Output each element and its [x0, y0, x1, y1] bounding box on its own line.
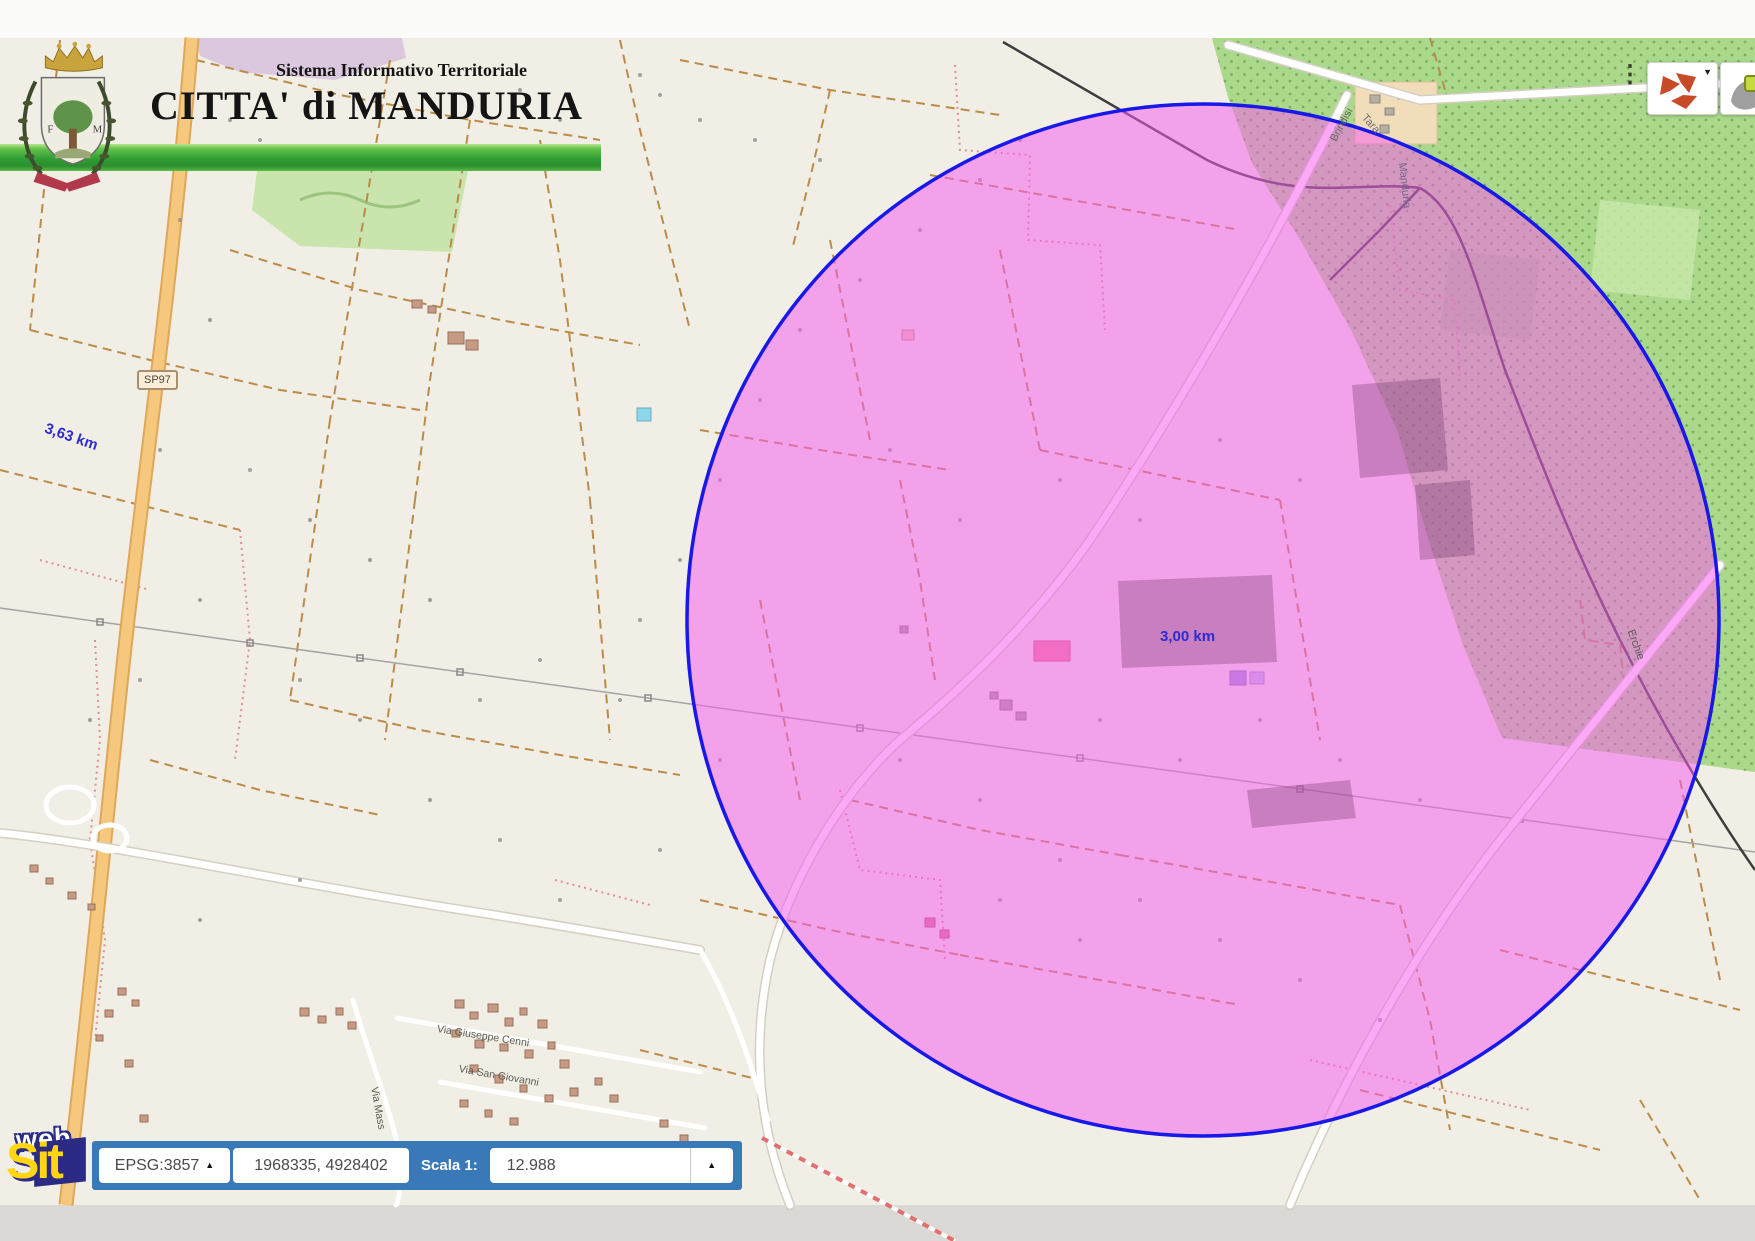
- websit-logo-sit: Sit: [6, 1132, 61, 1190]
- more-options-button[interactable]: ⋮: [1612, 56, 1638, 94]
- scale-input[interactable]: [505, 1156, 679, 1176]
- caret-up-icon: ▲: [205, 1161, 214, 1170]
- epsg-dropdown[interactable]: EPSG:3857 ▲: [99, 1148, 230, 1183]
- map-canvas[interactable]: [0, 0, 1755, 1241]
- crest-letter-f: F: [47, 124, 53, 136]
- kebab-icon: ⋮: [1618, 61, 1642, 88]
- chevron-down-icon: ▼: [1703, 67, 1712, 77]
- road-ref-badge: SP97: [137, 370, 178, 390]
- coordinates-input[interactable]: [233, 1148, 409, 1183]
- rotate-tool-button[interactable]: ▼: [1647, 62, 1718, 115]
- app-title: CITTA' di MANDURIA: [150, 82, 583, 129]
- street-tool-icon: [1729, 71, 1755, 111]
- caret-up-icon: ▲: [707, 1161, 716, 1170]
- status-toolbar: EPSG:3857 ▲ Scala 1: ▲: [92, 1141, 742, 1190]
- websit-logo: web Sit: [4, 1124, 104, 1208]
- crest-letter-m: M: [93, 124, 103, 136]
- scale-prefix-label: Scala 1:: [412, 1157, 487, 1174]
- websit-gis-app: F M Sistema Informativo Territoriale CIT…: [0, 0, 1755, 1241]
- street-tool-button[interactable]: [1720, 62, 1755, 115]
- municipal-crest-logo: F M: [8, 34, 126, 192]
- scale-field: ▲: [490, 1148, 733, 1183]
- red-recycle-arrows-icon: [1656, 71, 1700, 109]
- epsg-label: EPSG:3857: [115, 1157, 200, 1175]
- app-subtitle: Sistema Informativo Territoriale: [276, 60, 527, 81]
- circle-measure-label: 3,00 km: [1160, 628, 1215, 645]
- scale-dropdown-button[interactable]: ▲: [691, 1148, 733, 1183]
